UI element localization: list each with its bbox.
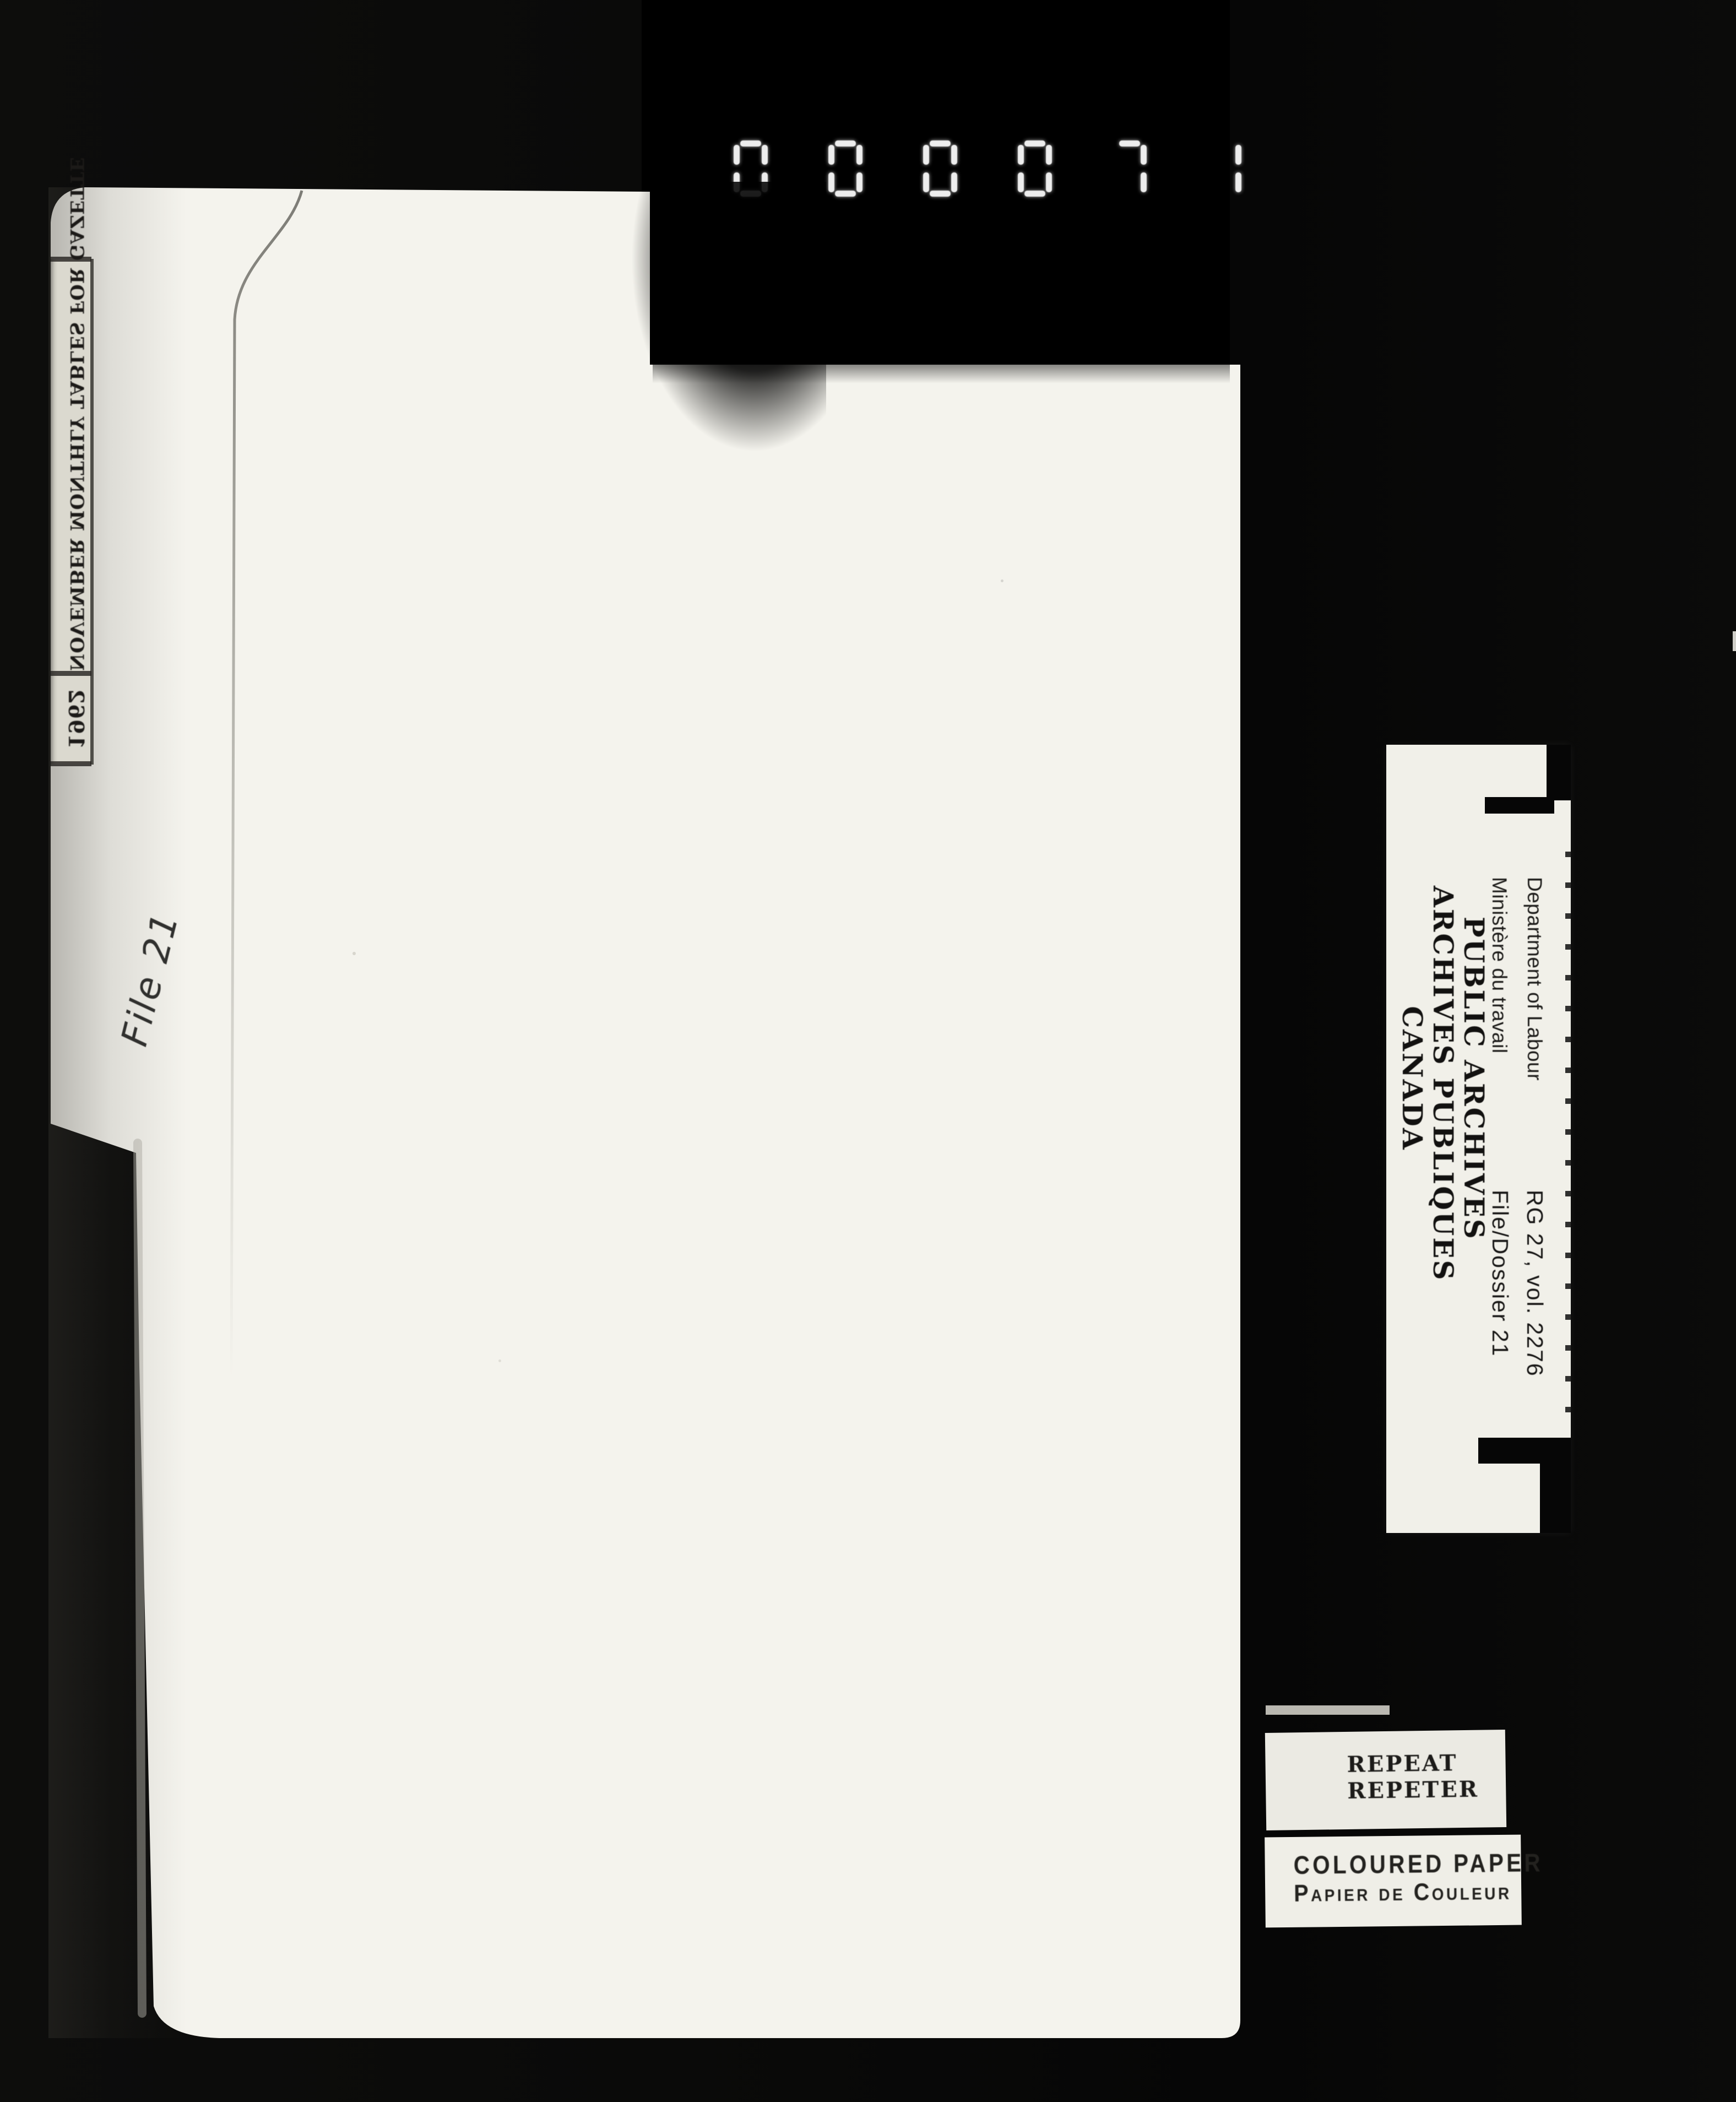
scan-edge-nick [1733, 631, 1736, 651]
card-notch-top-corner [1547, 745, 1571, 800]
repeat-line-fr: REPETER [1347, 1776, 1479, 1805]
coloured-paper-stamp-label: COLOURED PAPER Papier de Couleur [1265, 1835, 1522, 1928]
card-notch-bottom-corner [1540, 1438, 1571, 1533]
institution-block: PUBLIC ARCHIVES ARCHIVES PUBLIQUES CANAD… [1397, 886, 1489, 1271]
dust-speck [498, 1359, 501, 1362]
repeat-stamp-text: REPEAT REPETER [1347, 1750, 1479, 1805]
institution-line-fr: ARCHIVES PUBLIQUES [1428, 886, 1458, 1271]
repeat-stamp-label: REPEAT REPETER [1265, 1730, 1506, 1830]
department-line-en: Department of Labour [1517, 877, 1552, 1081]
card-notch-top-slot [1485, 797, 1554, 814]
coloured-paper-line-fr: Papier de Couleur [1294, 1878, 1512, 1908]
card-perforated-edge [1565, 826, 1571, 1421]
department-block: Department of Labour Ministère du travai… [1482, 877, 1552, 1081]
archives-reference-card: Department of Labour Ministère du travai… [1386, 745, 1571, 1533]
tab-label-divider-rule [51, 671, 91, 676]
repeat-line-en: REPEAT [1347, 1750, 1478, 1778]
archives-card-content: Department of Labour Ministère du travai… [1386, 745, 1571, 1533]
label-edge-sliver [1266, 1705, 1390, 1715]
dust-speck [1001, 579, 1003, 582]
tab-label-bottom-rule [51, 761, 91, 766]
institution-line-canada: CANADA [1397, 886, 1428, 1271]
reference-volume: RG 27, vol. 2276 [1517, 1190, 1552, 1377]
folder-top-edge-shadow [653, 365, 1230, 383]
tab-label-year: 1962 [64, 678, 88, 760]
microfilm-scan-stage: NOVEMBER MONTHLY TABLES FOR GAZETTE 1962… [0, 0, 1736, 2102]
coloured-paper-line-en: COLOURED PAPER [1293, 1848, 1543, 1880]
dust-speck [352, 952, 356, 955]
tab-label-title: NOVEMBER MONTHLY TABLES FOR GAZETTE [64, 259, 89, 671]
folder-corner-shadow [551, 182, 826, 667]
reference-block: RG 27, vol. 2276 File/Dossier 21 [1483, 1190, 1552, 1377]
institution-line-en: PUBLIC ARCHIVES [1458, 886, 1489, 1271]
